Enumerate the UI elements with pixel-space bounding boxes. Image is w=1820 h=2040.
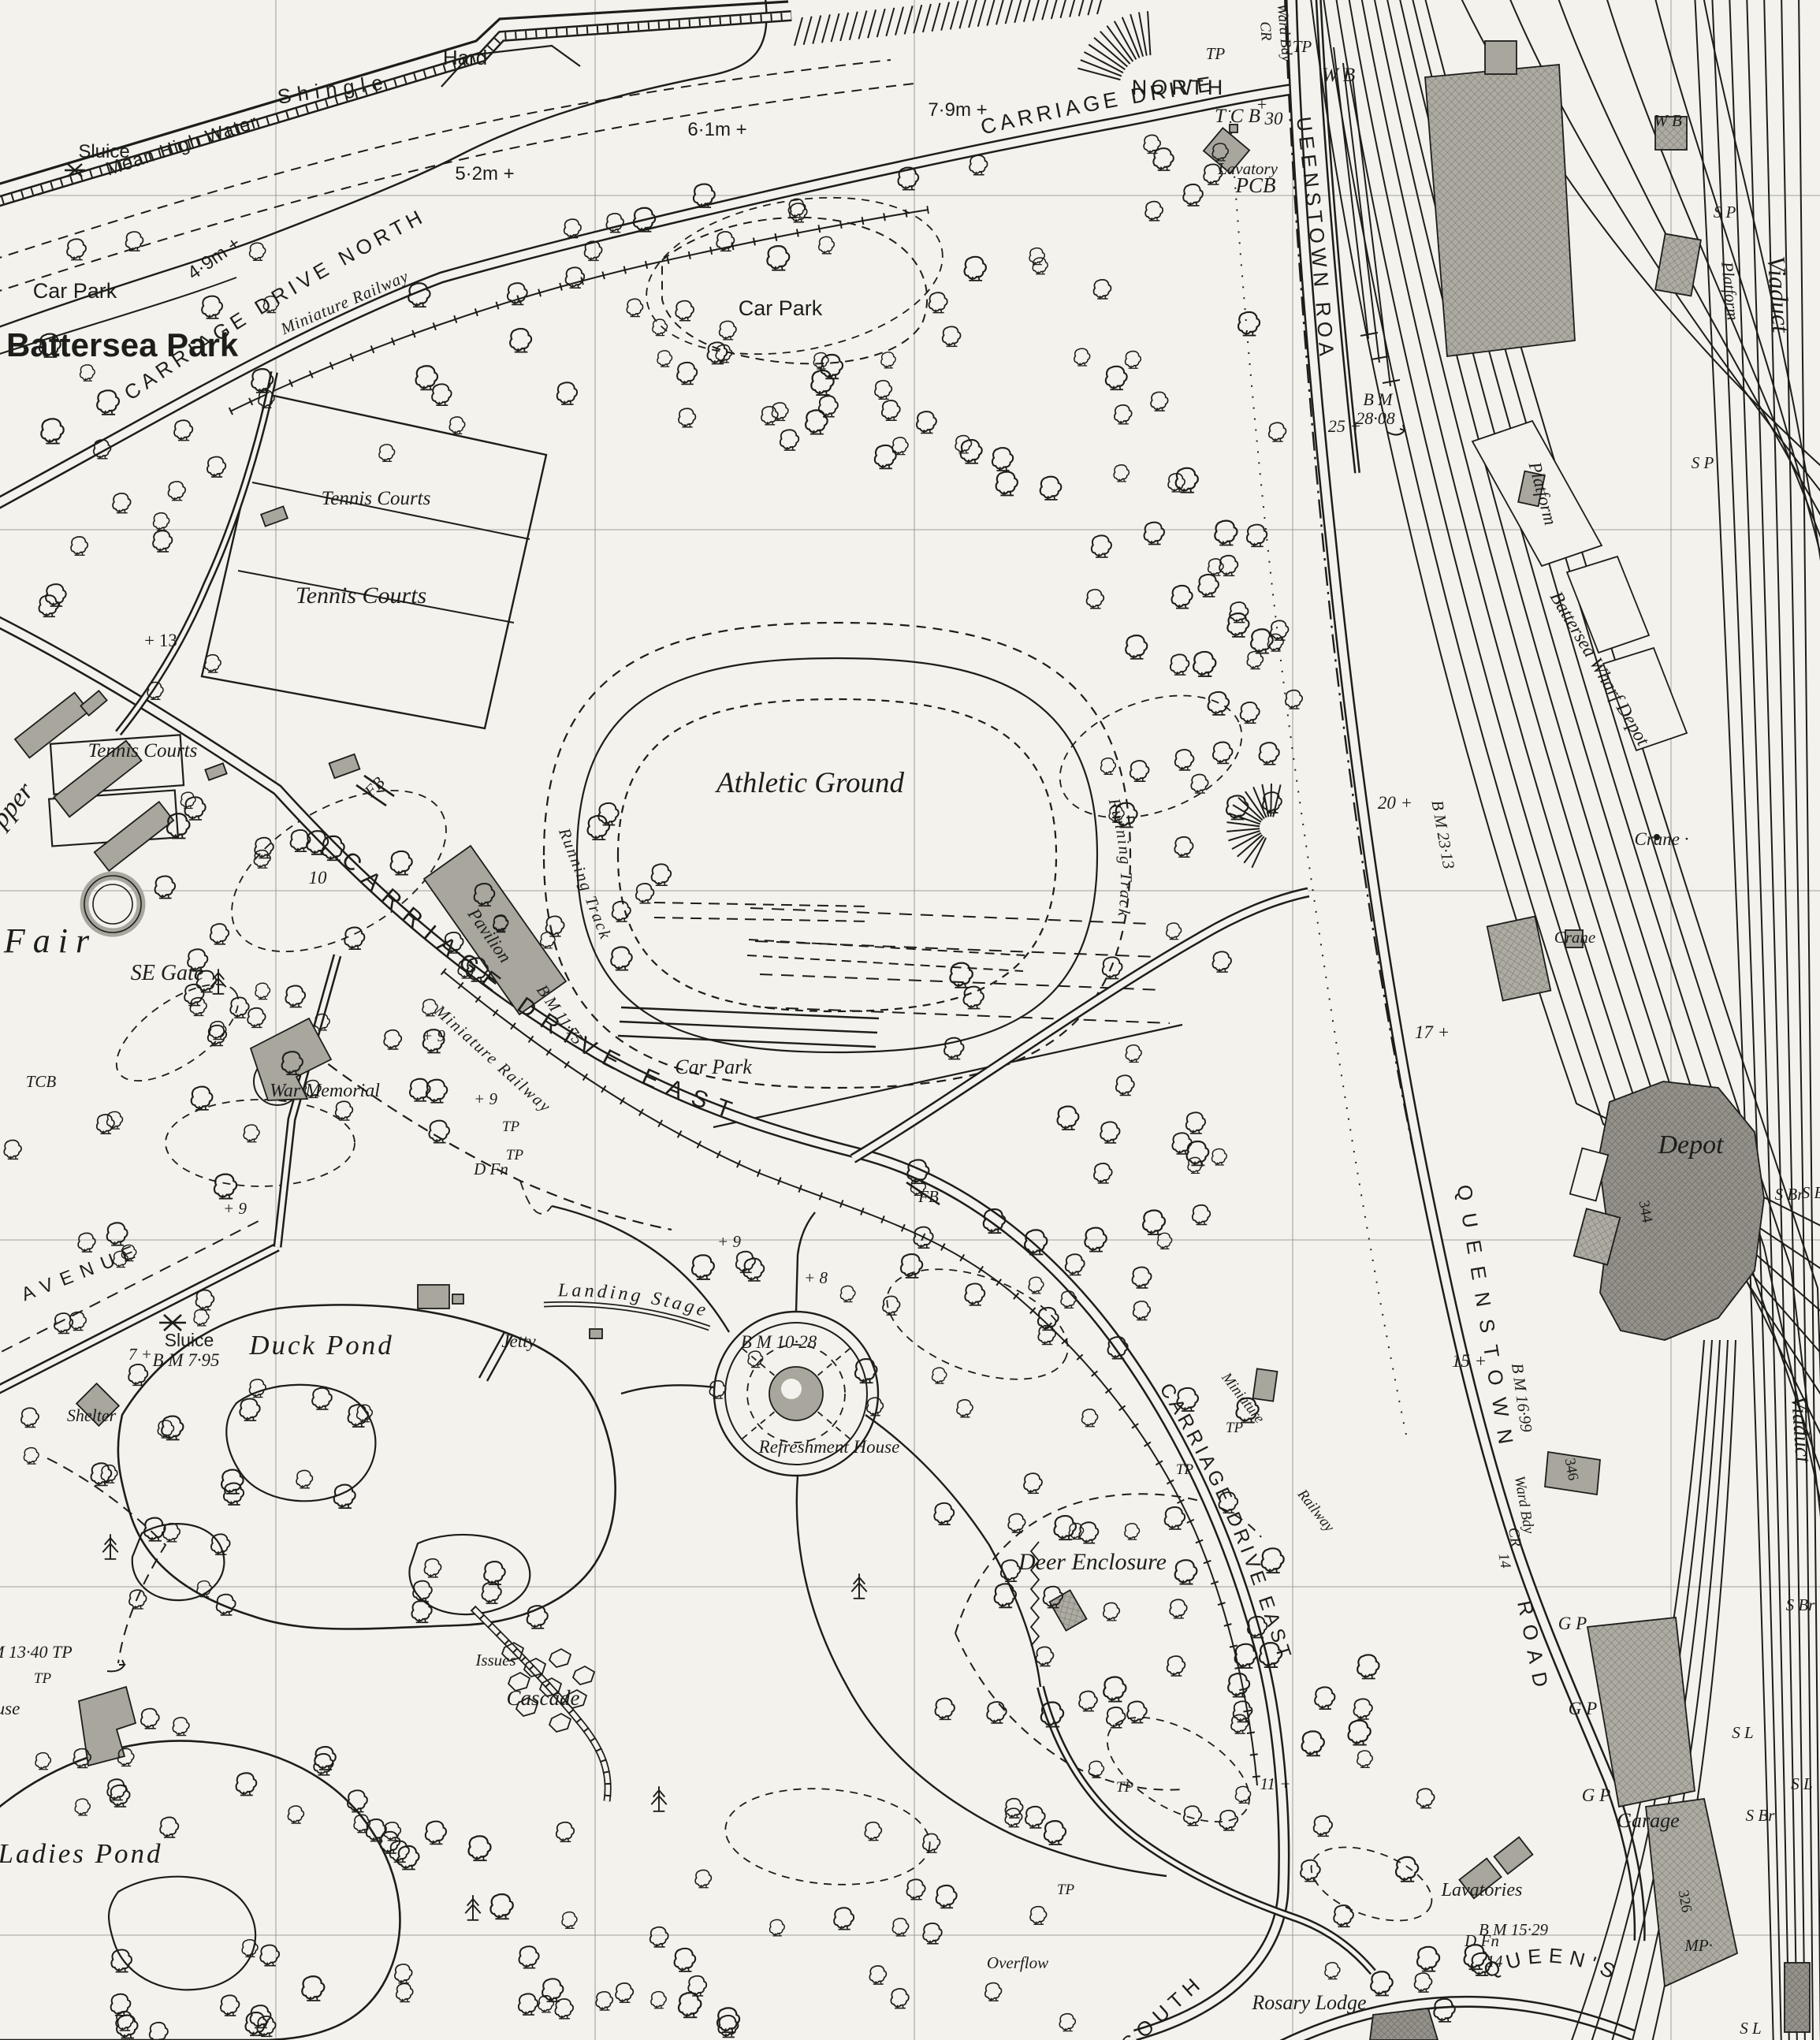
map-label: D Fn bbox=[1464, 1931, 1499, 1950]
map-label: + 9 bbox=[717, 1232, 741, 1251]
map-label: 20 + bbox=[1378, 793, 1412, 813]
map-label: Lavatories bbox=[1441, 1880, 1523, 1900]
map-label: Duck Pond bbox=[248, 1330, 393, 1361]
map-label: Tennis Courts bbox=[296, 583, 426, 609]
map-label: 17 + bbox=[1415, 1022, 1450, 1042]
map-label: + 9 bbox=[422, 1026, 445, 1045]
map-label: W B bbox=[1654, 111, 1682, 130]
map-label: Crane bbox=[1554, 928, 1596, 947]
map-label: use bbox=[0, 1699, 20, 1718]
map-label: Cascade bbox=[507, 1686, 580, 1710]
map-canvas: Battersea ParkCar ParkCar ParkCar ParkSl… bbox=[0, 0, 1820, 2040]
map-label: 7·9m + bbox=[928, 99, 987, 121]
map-label: G P bbox=[1558, 1614, 1587, 1633]
map-label: Garage bbox=[1617, 1809, 1679, 1832]
map-label: Tennis Courts bbox=[322, 488, 431, 509]
map-label: T C B bbox=[1215, 106, 1260, 127]
map-label: S L bbox=[1791, 1774, 1812, 1793]
map-label: S L bbox=[1732, 1723, 1753, 1742]
map-label: 6·1m + bbox=[687, 119, 746, 140]
map-screenshot: Battersea ParkCar ParkCar ParkCar ParkSl… bbox=[0, 0, 1820, 2040]
map-label: TP bbox=[506, 1147, 524, 1163]
map-label: MP· bbox=[1684, 1936, 1713, 1955]
map-label: B M 7·95 bbox=[153, 1350, 220, 1370]
map-label: TP bbox=[1206, 44, 1226, 63]
map-label: S Br bbox=[1746, 1806, 1776, 1825]
map-label: PCB bbox=[1235, 173, 1276, 197]
map-label: G P bbox=[1569, 1699, 1597, 1718]
map-label: B M 13·40 TP bbox=[0, 1642, 73, 1662]
map-label: Fair bbox=[3, 921, 97, 960]
map-label: Viaduct bbox=[1786, 1395, 1815, 1465]
map-label: + 9 bbox=[223, 1199, 247, 1218]
map-label: S L bbox=[1740, 2019, 1761, 2038]
map-label: Viaduct bbox=[1762, 255, 1796, 335]
map-label: Refreshment House bbox=[758, 1437, 900, 1457]
map-label: Ladies Pond bbox=[0, 1838, 162, 1869]
map-label: + 13 bbox=[144, 631, 177, 650]
map-label: TP bbox=[1176, 1461, 1194, 1478]
map-label: S Br bbox=[1786, 1595, 1816, 1614]
map-label: 5·2m + bbox=[455, 163, 514, 184]
map-label: 28·08 bbox=[1356, 408, 1395, 428]
map-label: Car Park bbox=[33, 279, 117, 303]
map-label: 7 + bbox=[128, 1345, 152, 1364]
map-label: Deer Enclosure bbox=[1018, 1549, 1167, 1575]
map-label: 25 + bbox=[1328, 416, 1361, 436]
map-label: FB bbox=[917, 1187, 939, 1206]
map-label: D Fn bbox=[473, 1160, 508, 1178]
map-label: S Br bbox=[1775, 1185, 1805, 1204]
map-label: Sluice bbox=[165, 1330, 214, 1350]
map-label: + 8 bbox=[804, 1268, 828, 1287]
map-label: Shelter bbox=[67, 1405, 117, 1425]
map-label: Overflow bbox=[987, 1953, 1048, 1972]
map-label: TP bbox=[502, 1119, 520, 1135]
map-label: War Memorial bbox=[270, 1081, 380, 1101]
map-label: SE Gate bbox=[131, 961, 204, 985]
map-label: TP bbox=[1226, 1420, 1244, 1436]
map-label: Tennis Courts bbox=[88, 740, 198, 761]
map-label: Car Park bbox=[739, 296, 823, 320]
map-label: TP bbox=[1116, 1779, 1134, 1796]
map-label: Hard bbox=[443, 46, 487, 69]
map-label: Rosary Lodge bbox=[1251, 1991, 1366, 2014]
map-label: 10 bbox=[309, 868, 328, 888]
map-label: 11 + bbox=[1260, 1774, 1291, 1793]
map-label: Issues bbox=[475, 1651, 515, 1670]
map-label: Depot bbox=[1657, 1130, 1725, 1160]
map-label: TP bbox=[1293, 37, 1312, 56]
map-label: S B bbox=[1802, 1183, 1820, 1202]
map-label: CR bbox=[1256, 21, 1275, 42]
map-label: TP bbox=[34, 1670, 52, 1687]
map-label: TCB bbox=[26, 1072, 57, 1091]
map-label: Car Park bbox=[675, 1055, 752, 1078]
map-label: S P bbox=[1714, 203, 1736, 221]
map-label: CR bbox=[1505, 1526, 1524, 1548]
map-label: + 9 bbox=[474, 1089, 497, 1108]
map-label: Athletic Ground bbox=[714, 767, 905, 799]
map-label: W B bbox=[1322, 65, 1355, 86]
map-label: S P bbox=[1692, 453, 1714, 472]
map-label: B M bbox=[1363, 389, 1394, 409]
map-label: Jetty bbox=[501, 1331, 536, 1351]
map-label: 30 bbox=[1264, 109, 1284, 128]
map-label: TP bbox=[1057, 1882, 1075, 1898]
map-label: Crane · bbox=[1635, 829, 1689, 849]
map-label: B M 10·28 bbox=[741, 1332, 817, 1352]
map-label: G P bbox=[1582, 1785, 1610, 1805]
